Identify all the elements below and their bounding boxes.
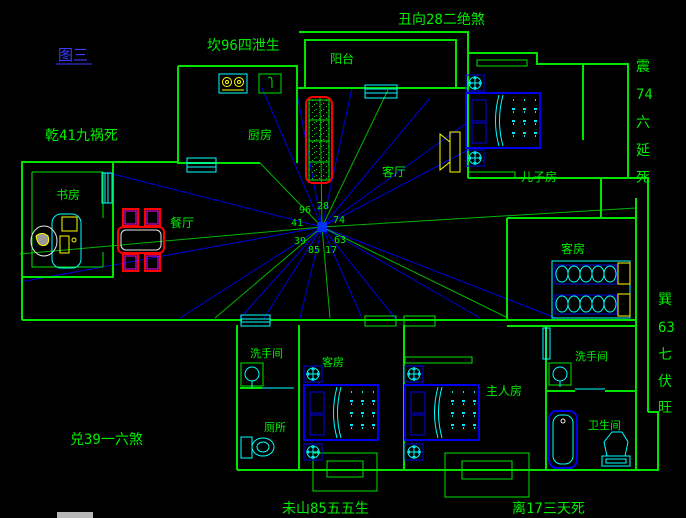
plant-icon xyxy=(306,97,332,183)
svg-text:旺: 旺 xyxy=(658,400,672,416)
svg-text:17: 17 xyxy=(325,245,337,256)
twin-beds-icon xyxy=(552,261,630,318)
svg-text:巽: 巽 xyxy=(658,292,672,308)
svg-text:七: 七 xyxy=(658,347,672,363)
guest-nightstand-icon xyxy=(304,444,322,460)
room-label-dining: 餐厅 xyxy=(170,215,194,230)
room-label-bathroom: 卫生间 xyxy=(588,418,621,432)
svg-text:延: 延 xyxy=(636,143,650,159)
fengshui-south-label: 离17三天死 xyxy=(512,500,585,517)
living-window-icon xyxy=(365,85,397,98)
svg-text:74: 74 xyxy=(333,215,345,226)
toilet-right-icon xyxy=(602,432,630,466)
dining-table-icon xyxy=(118,227,164,253)
hall-window-icon xyxy=(241,315,270,326)
svg-text:六: 六 xyxy=(636,115,650,131)
fengshui-west-label: 兑39一六煞 xyxy=(70,432,143,448)
room-label-washroom-right: 洗手间 xyxy=(575,349,608,363)
son-bed-icon xyxy=(466,93,540,148)
fengshui-southeast-label: 巽 63 七 伏 旺 xyxy=(658,292,675,416)
room-label-guest-bottom: 客房 xyxy=(322,355,344,369)
svg-text:震: 震 xyxy=(636,59,650,75)
svg-text:85: 85 xyxy=(308,245,320,256)
fengshui-top-label: 丑向28二绝煞 xyxy=(398,12,485,28)
bathtub-icon xyxy=(549,411,577,468)
fengshui-east-label: 震 74 六 延 死 xyxy=(636,59,653,186)
svg-text:41: 41 xyxy=(291,218,303,229)
svg-text:63: 63 xyxy=(658,320,675,336)
kitchen-stove-icon xyxy=(219,74,247,93)
svg-text:死: 死 xyxy=(636,170,650,186)
svg-text:伏: 伏 xyxy=(658,374,672,390)
kitchen-window-icon xyxy=(187,158,216,172)
washroom-window-icon xyxy=(543,328,550,359)
master-nightstand-icon xyxy=(405,366,423,382)
room-label-washroom-left: 洗手间 xyxy=(250,346,283,360)
room-label-toilet: 厕所 xyxy=(264,421,286,434)
screen-artifact xyxy=(57,512,93,518)
tv-speaker-icon xyxy=(440,132,460,172)
room-label-balcony: 阳台 xyxy=(330,51,354,66)
room-label-kitchen: 厨房 xyxy=(248,127,272,142)
guest-nightstand-icon xyxy=(304,366,322,382)
washroom-right-sink-icon xyxy=(549,363,571,387)
washroom-sink-icon xyxy=(241,363,263,388)
fengshui-southwest-label: 未山85五五生 xyxy=(282,501,369,517)
room-label-guest-right: 客房 xyxy=(561,241,585,256)
svg-text:28: 28 xyxy=(317,201,329,212)
svg-text:74: 74 xyxy=(636,87,653,103)
master-nightstand-icon xyxy=(405,444,423,460)
room-label-study: 书房 xyxy=(56,187,80,202)
fengshui-north-label: 坎96四泄生 xyxy=(207,38,280,54)
floorplan-drawing: 图三 坎96四泄生 丑向28二绝煞 乾41九祸死 兑39一六煞 未山85五五生 … xyxy=(0,0,686,518)
room-label-living: 客厅 xyxy=(382,164,406,179)
study-desk-icon xyxy=(52,214,81,268)
toilet-icon xyxy=(241,437,274,458)
room-label-master: 主人房 xyxy=(486,383,522,398)
guest-bed-icon xyxy=(304,385,378,440)
svg-text:96: 96 xyxy=(299,205,311,216)
dining-chairs-icon xyxy=(123,209,160,271)
cad-floorplan-canvas[interactable]: 图三 坎96四泄生 丑向28二绝煞 乾41九祸死 兑39一六煞 未山85五五生 … xyxy=(0,0,686,518)
master-bed-icon xyxy=(405,385,479,440)
fengshui-northwest-label: 乾41九祸死 xyxy=(45,128,118,144)
compass-center-point xyxy=(317,222,327,232)
kitchen-sink-icon xyxy=(259,74,281,93)
figure-label: 图三 xyxy=(58,46,88,64)
room-label-son: 儿子房 xyxy=(521,169,557,184)
svg-text:39: 39 xyxy=(294,236,306,247)
